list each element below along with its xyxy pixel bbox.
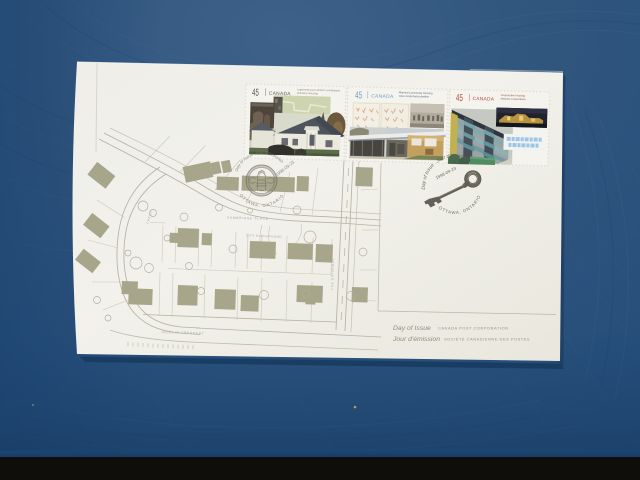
svg-text:CANADA: CANADA (371, 93, 394, 100)
svg-text:CANADA POST CORPORATION: CANADA POST CORPORATION (438, 326, 508, 331)
svg-text:45: 45 (252, 88, 259, 99)
svg-text:SOCIÉTÉ CANADIENNE DES POSTES: SOCIÉTÉ CANADIENNE DES POSTES (444, 337, 530, 342)
svg-text:45: 45 (456, 93, 463, 104)
svg-text:Maisons cooperatives: Maisons cooperatives (501, 96, 527, 101)
svg-text:Jour d'émission: Jour d'émission (392, 336, 440, 343)
svg-text:Cites-modernistis planifiee: Cites-modernistis planifiee (399, 94, 430, 99)
svg-text:45: 45 (355, 90, 362, 101)
svg-text:Day of Issue: Day of Issue (393, 325, 431, 332)
svg-text:Veterans' Housing: Veterans' Housing (297, 91, 319, 96)
svg-text:CANADA: CANADA (269, 91, 291, 98)
svg-text:CANADA: CANADA (472, 96, 494, 103)
